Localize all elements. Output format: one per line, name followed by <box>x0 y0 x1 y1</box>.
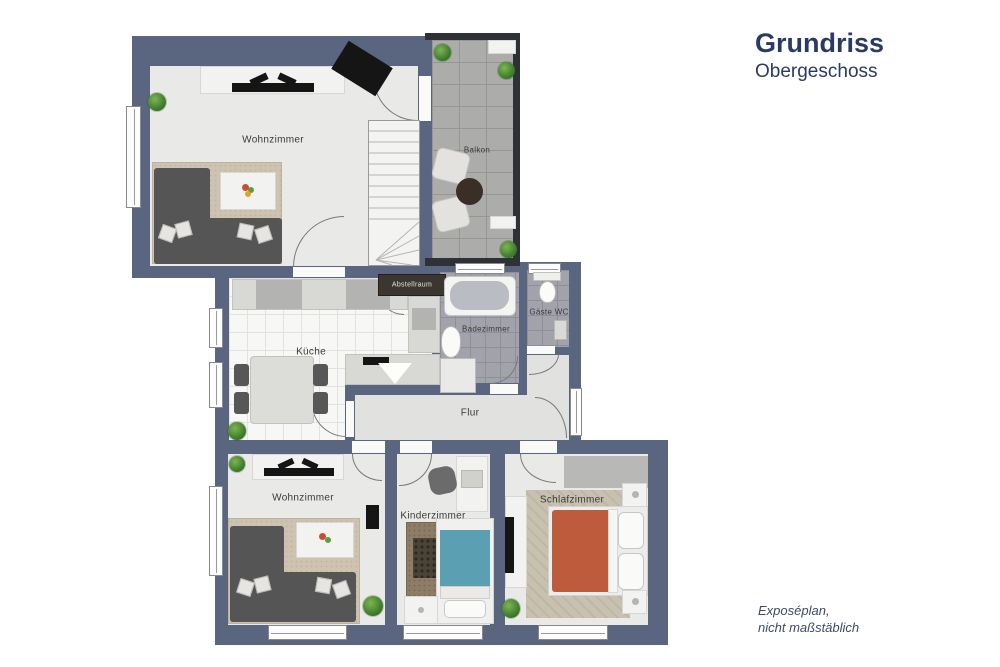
dining-table <box>250 356 314 424</box>
wall <box>519 262 527 395</box>
window <box>570 388 582 436</box>
tv <box>264 468 334 476</box>
title-block: Grundriss Obergeschoss <box>755 28 884 83</box>
room-label-wohnzimmer-top: Wohnzimmer <box>242 135 304 146</box>
wall <box>132 36 432 66</box>
sink <box>554 320 567 340</box>
room-label-wohnzimmer-bottom: Wohnzimmer <box>272 493 334 504</box>
page-subtitle: Obergeschoss <box>755 61 884 83</box>
door-opening <box>346 401 354 437</box>
chair <box>234 364 249 386</box>
window <box>126 106 141 208</box>
door-opening <box>293 267 345 277</box>
door-opening <box>490 384 518 394</box>
chair <box>313 392 328 414</box>
kitchen-sink <box>412 308 436 330</box>
room-label-badezimmer: Badezimmer <box>462 325 510 334</box>
wall <box>385 454 397 625</box>
window <box>209 308 223 348</box>
room-label-kueche: Küche <box>296 347 326 358</box>
window <box>209 486 223 576</box>
pillow <box>315 577 332 594</box>
staircase <box>368 120 420 266</box>
plant-icon <box>228 422 246 440</box>
room-label-gaeste-wc: Gäste WC <box>529 308 568 317</box>
plant-icon <box>498 62 515 79</box>
door-opening <box>520 441 557 453</box>
bed-blanket <box>440 530 490 587</box>
chair <box>234 392 249 414</box>
door-opening <box>400 441 432 453</box>
tv-sideboard <box>252 454 344 480</box>
floorplan-canvas: Wohnzimmer Balkon Küche Abstellraum Bade… <box>0 0 1000 667</box>
bed-sheet <box>608 509 618 593</box>
bed-blanket <box>552 510 612 592</box>
window <box>538 625 608 640</box>
plant-icon <box>229 456 245 472</box>
dresser-knob <box>418 607 424 613</box>
shower <box>440 358 476 393</box>
page-title: Grundriss <box>755 28 884 59</box>
footer-line2: nicht maßstäblich <box>758 619 859 636</box>
sink <box>441 326 461 358</box>
wall <box>418 36 432 278</box>
bed-pillow <box>618 512 644 549</box>
room-label-schlafzimmer: Schlafzimmer <box>540 495 604 506</box>
room-label-kinderzimmer: Kinderzimmer <box>400 511 465 522</box>
wall <box>648 440 668 645</box>
nightstand-knob <box>632 598 639 605</box>
room-label-abstellraum: Abstellraum <box>392 282 432 289</box>
bathtub-basin <box>450 281 509 310</box>
toilet <box>533 272 561 281</box>
door-opening <box>527 346 555 354</box>
room-label-flur: Flur <box>461 408 479 419</box>
nightstand-knob <box>632 491 639 498</box>
door-opening <box>352 441 385 453</box>
tv <box>366 505 379 529</box>
room-label-balkon: Balkon <box>464 146 490 155</box>
plant-icon <box>500 241 517 258</box>
balcony-table <box>456 178 483 205</box>
wall <box>215 440 668 454</box>
fruit-bowl <box>245 191 251 197</box>
bed-sheet <box>440 586 490 599</box>
footer-line1: Exposéplan, <box>758 602 859 619</box>
window <box>455 263 505 274</box>
bed-pillow <box>618 553 644 590</box>
chair <box>313 364 328 386</box>
wall <box>215 278 229 440</box>
window <box>209 362 223 408</box>
window <box>403 625 483 640</box>
plant-icon <box>363 596 383 616</box>
kitchen-appliance <box>256 280 302 309</box>
bed-pillow <box>444 600 486 618</box>
plant-icon <box>434 44 451 61</box>
planter-box <box>490 216 516 229</box>
tv <box>505 517 514 573</box>
pillow <box>237 223 255 241</box>
footer-note: Exposéplan, nicht maßstäblich <box>758 602 859 636</box>
plant-icon <box>148 93 166 111</box>
tv <box>232 83 314 92</box>
door-opening <box>419 76 431 121</box>
planter-box <box>488 40 516 54</box>
toilet <box>539 281 556 303</box>
desk-item <box>461 470 483 488</box>
plant-icon <box>502 599 520 618</box>
balcony-wall <box>425 33 520 40</box>
fruit-bowl <box>325 537 331 543</box>
window <box>268 625 347 640</box>
